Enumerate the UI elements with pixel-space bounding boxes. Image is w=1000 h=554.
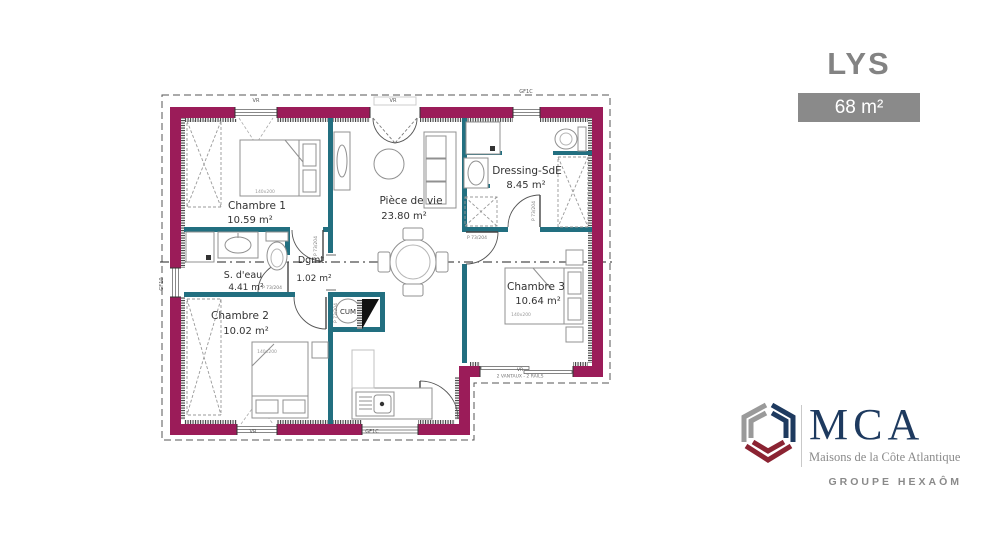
room-label-chambre3: Chambre 3 (507, 281, 565, 293)
page-canvas: Chambre 1 10.59 m² Pièce de vie 23.80 m²… (0, 0, 1000, 554)
door-label-chambre2: P 73/204 (333, 303, 339, 323)
room-label-dressing-sde: Dressing-SdE (492, 165, 562, 177)
bed-size-chambre2: 140x200 (257, 349, 277, 355)
water-heater-label: CUM (340, 308, 356, 316)
window-label-top1: VR (253, 98, 260, 104)
title-block: LYS 68 m² (798, 44, 920, 122)
plan-title: LYS (798, 44, 920, 84)
room-area-chambre2: 10.02 m² (223, 326, 269, 337)
logo-divider (801, 405, 802, 467)
room-area-dgmt: 1.02 m² (296, 274, 332, 284)
bay-window-label-vr: VR (517, 367, 523, 373)
brand-name: MCA (809, 402, 960, 448)
opening-ticks (326, 255, 336, 290)
window-label-bottom2: GF1C (365, 429, 379, 435)
room-label-chambre1: Chambre 1 (228, 200, 286, 212)
bed-size-chambre1: 140x200 (255, 189, 275, 195)
window-label-top2: GF1C (519, 89, 533, 95)
bed-size-chambre3: 140x200 (511, 312, 531, 318)
window-label-left: GF10 (159, 277, 165, 290)
room-label-piece-de-vie: Pièce de vie (379, 195, 442, 207)
room-area-piece-de-vie: 23.80 m² (381, 211, 427, 222)
group-name: GROUPE HEXAÔM (738, 476, 966, 488)
room-label-chambre2: Chambre 2 (211, 310, 269, 322)
brand-tagline: Maisons de la Côte Atlantique (809, 450, 960, 465)
window-label-bottom1: VR (250, 429, 257, 435)
area-badge: 68 m² (798, 93, 920, 122)
door-label-chambre3: P 73/204 (467, 235, 487, 241)
room-area-chambre1: 10.59 m² (227, 215, 273, 226)
room-area-sdeau: 4.41 m² (228, 283, 264, 293)
mca-logo: MCA Maisons de la Côte Atlantique GROUPE… (738, 402, 966, 488)
room-area-chambre3: 10.64 m² (515, 296, 561, 307)
mca-cube-icon (738, 402, 796, 468)
room-label-sdeau: S. d'eau (224, 270, 262, 281)
door-label-chambre1: P 73/204 (313, 236, 319, 256)
room-area-dressing-sde: 8.45 m² (506, 180, 545, 191)
door-label-dressing: P 73/204 (531, 201, 537, 221)
room-label-dgmt: Dgmt (298, 255, 325, 266)
door-label-sdeau: P 73/204 (262, 285, 282, 291)
window-label-entrance: VR (390, 98, 397, 104)
bay-window-label: 2 VANTAUX - 2 RAILS (497, 374, 544, 380)
